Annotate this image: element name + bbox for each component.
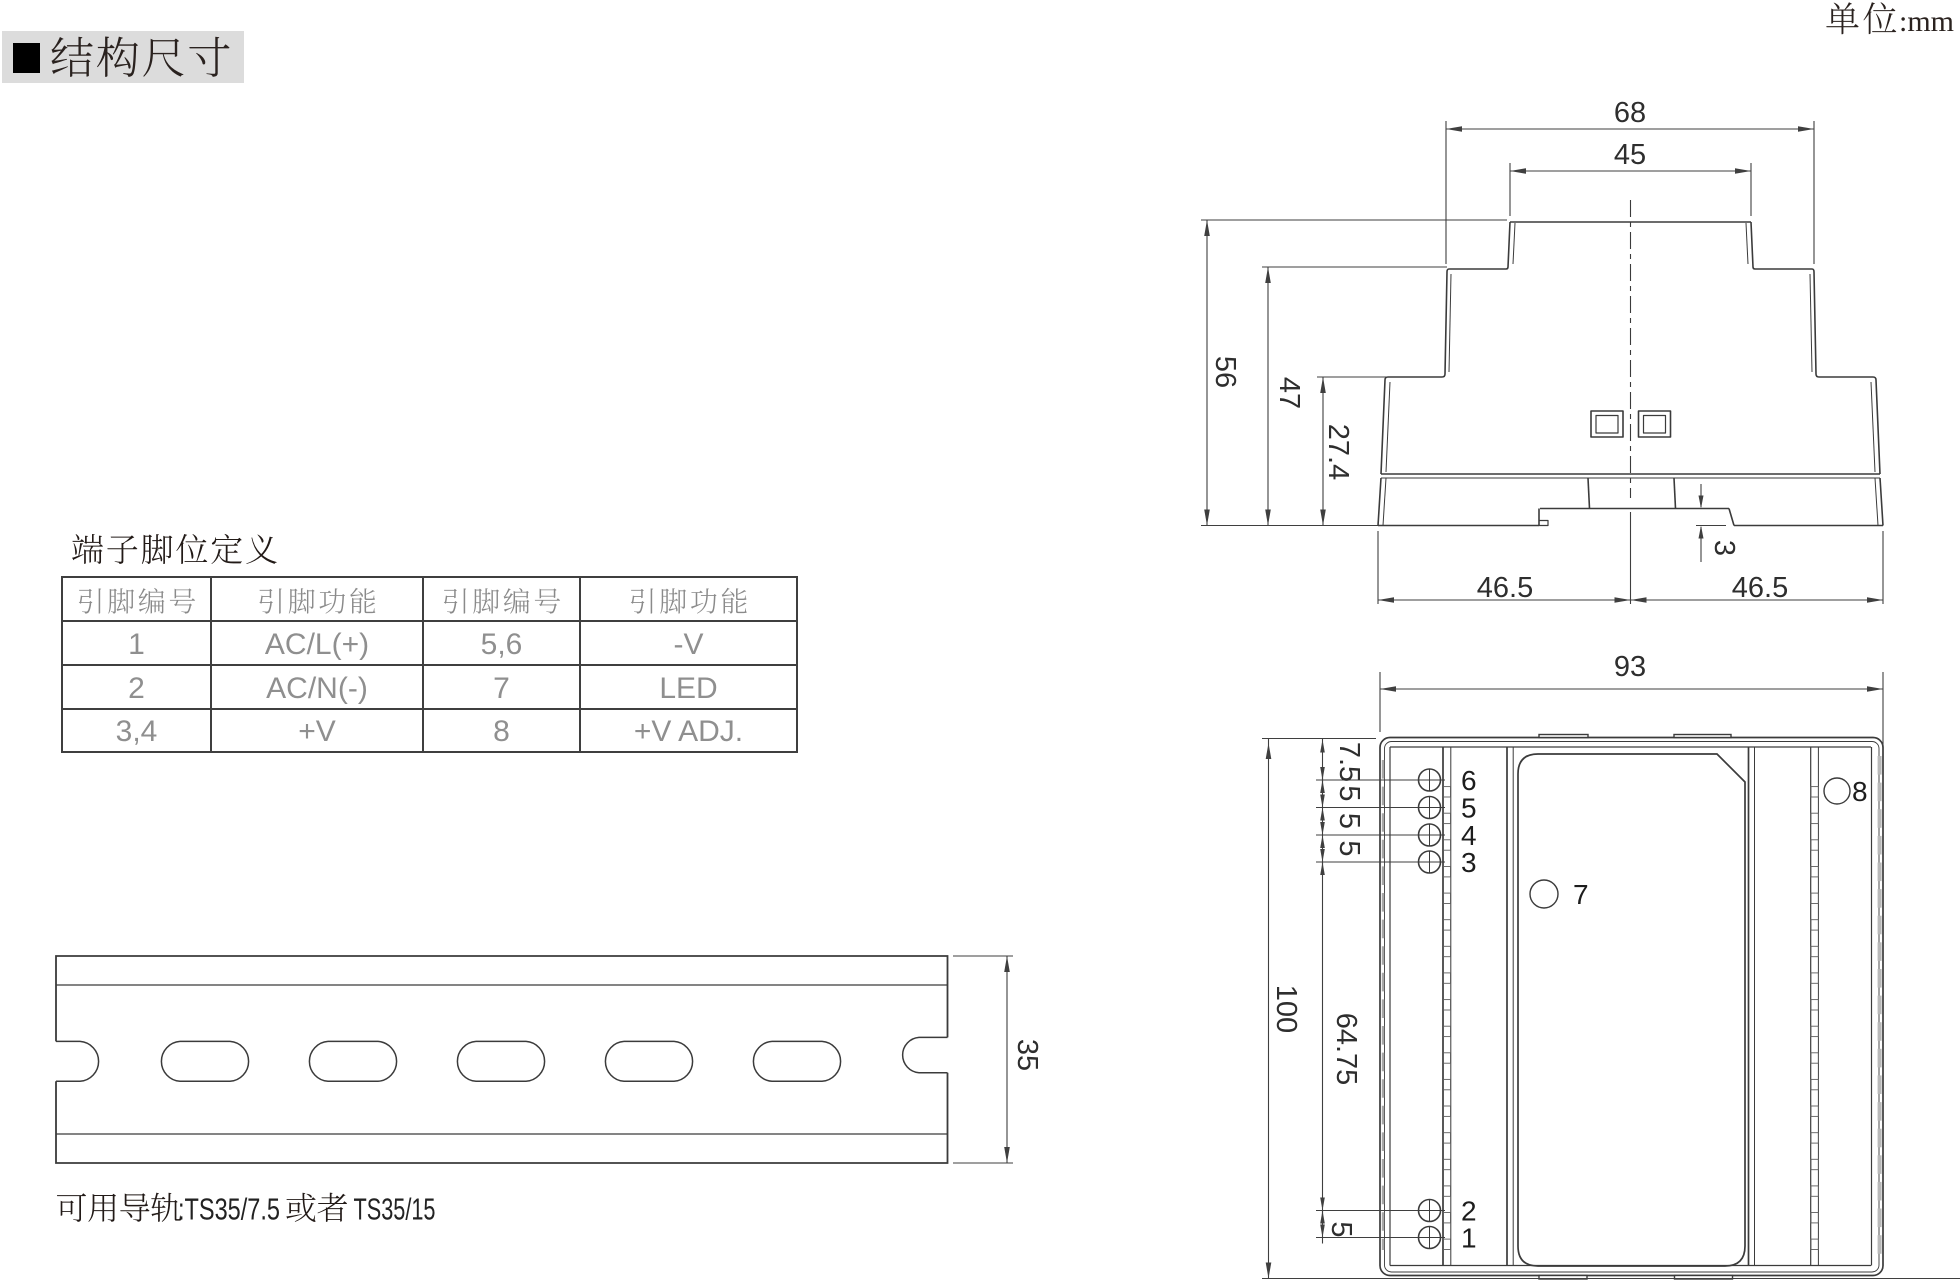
svg-text::TS35/7.5: :TS35/7.5 xyxy=(178,1192,280,1227)
svg-text:100: 100 xyxy=(1270,985,1302,1033)
svg-text:35: 35 xyxy=(1011,1039,1043,1071)
svg-text:5: 5 xyxy=(1333,840,1365,856)
svg-text:56: 56 xyxy=(1209,356,1241,388)
svg-text:7.5: 7.5 xyxy=(1333,742,1365,782)
svg-text:2: 2 xyxy=(128,672,145,705)
svg-text:+V: +V xyxy=(298,715,336,748)
svg-text:AC/L(+): AC/L(+) xyxy=(265,628,369,661)
svg-text:46.5: 46.5 xyxy=(1732,572,1788,604)
svg-text:6: 6 xyxy=(1461,765,1477,796)
svg-text:1: 1 xyxy=(1461,1223,1477,1254)
svg-text:-V: -V xyxy=(674,628,704,661)
svg-text:47: 47 xyxy=(1273,377,1305,409)
svg-text:27.4: 27.4 xyxy=(1322,424,1354,480)
svg-text:5,6: 5,6 xyxy=(481,628,523,661)
svg-text:TS35/15: TS35/15 xyxy=(354,1192,436,1227)
svg-text:AC/N(-): AC/N(-) xyxy=(266,672,368,705)
svg-text:5: 5 xyxy=(1325,1221,1357,1237)
svg-text:8: 8 xyxy=(493,715,510,748)
svg-text:93: 93 xyxy=(1614,651,1646,683)
svg-text:5: 5 xyxy=(1333,785,1365,801)
svg-text::mm: :mm xyxy=(1899,5,1954,38)
svg-text:7: 7 xyxy=(493,672,510,705)
svg-text:LED: LED xyxy=(659,672,717,705)
svg-text:68: 68 xyxy=(1614,97,1646,129)
svg-text:5: 5 xyxy=(1461,793,1477,824)
svg-text:46.5: 46.5 xyxy=(1477,572,1533,604)
svg-text:45: 45 xyxy=(1614,139,1646,171)
svg-text:5: 5 xyxy=(1333,813,1365,829)
svg-text:+V ADJ.: +V ADJ. xyxy=(634,715,743,748)
svg-text:3,4: 3,4 xyxy=(116,715,158,748)
svg-text:7: 7 xyxy=(1573,879,1589,910)
svg-text:3: 3 xyxy=(1708,540,1740,556)
svg-text:3: 3 xyxy=(1461,847,1477,878)
svg-text:8: 8 xyxy=(1852,776,1868,807)
svg-text:1: 1 xyxy=(128,628,145,661)
svg-text:64.75: 64.75 xyxy=(1330,1013,1362,1086)
